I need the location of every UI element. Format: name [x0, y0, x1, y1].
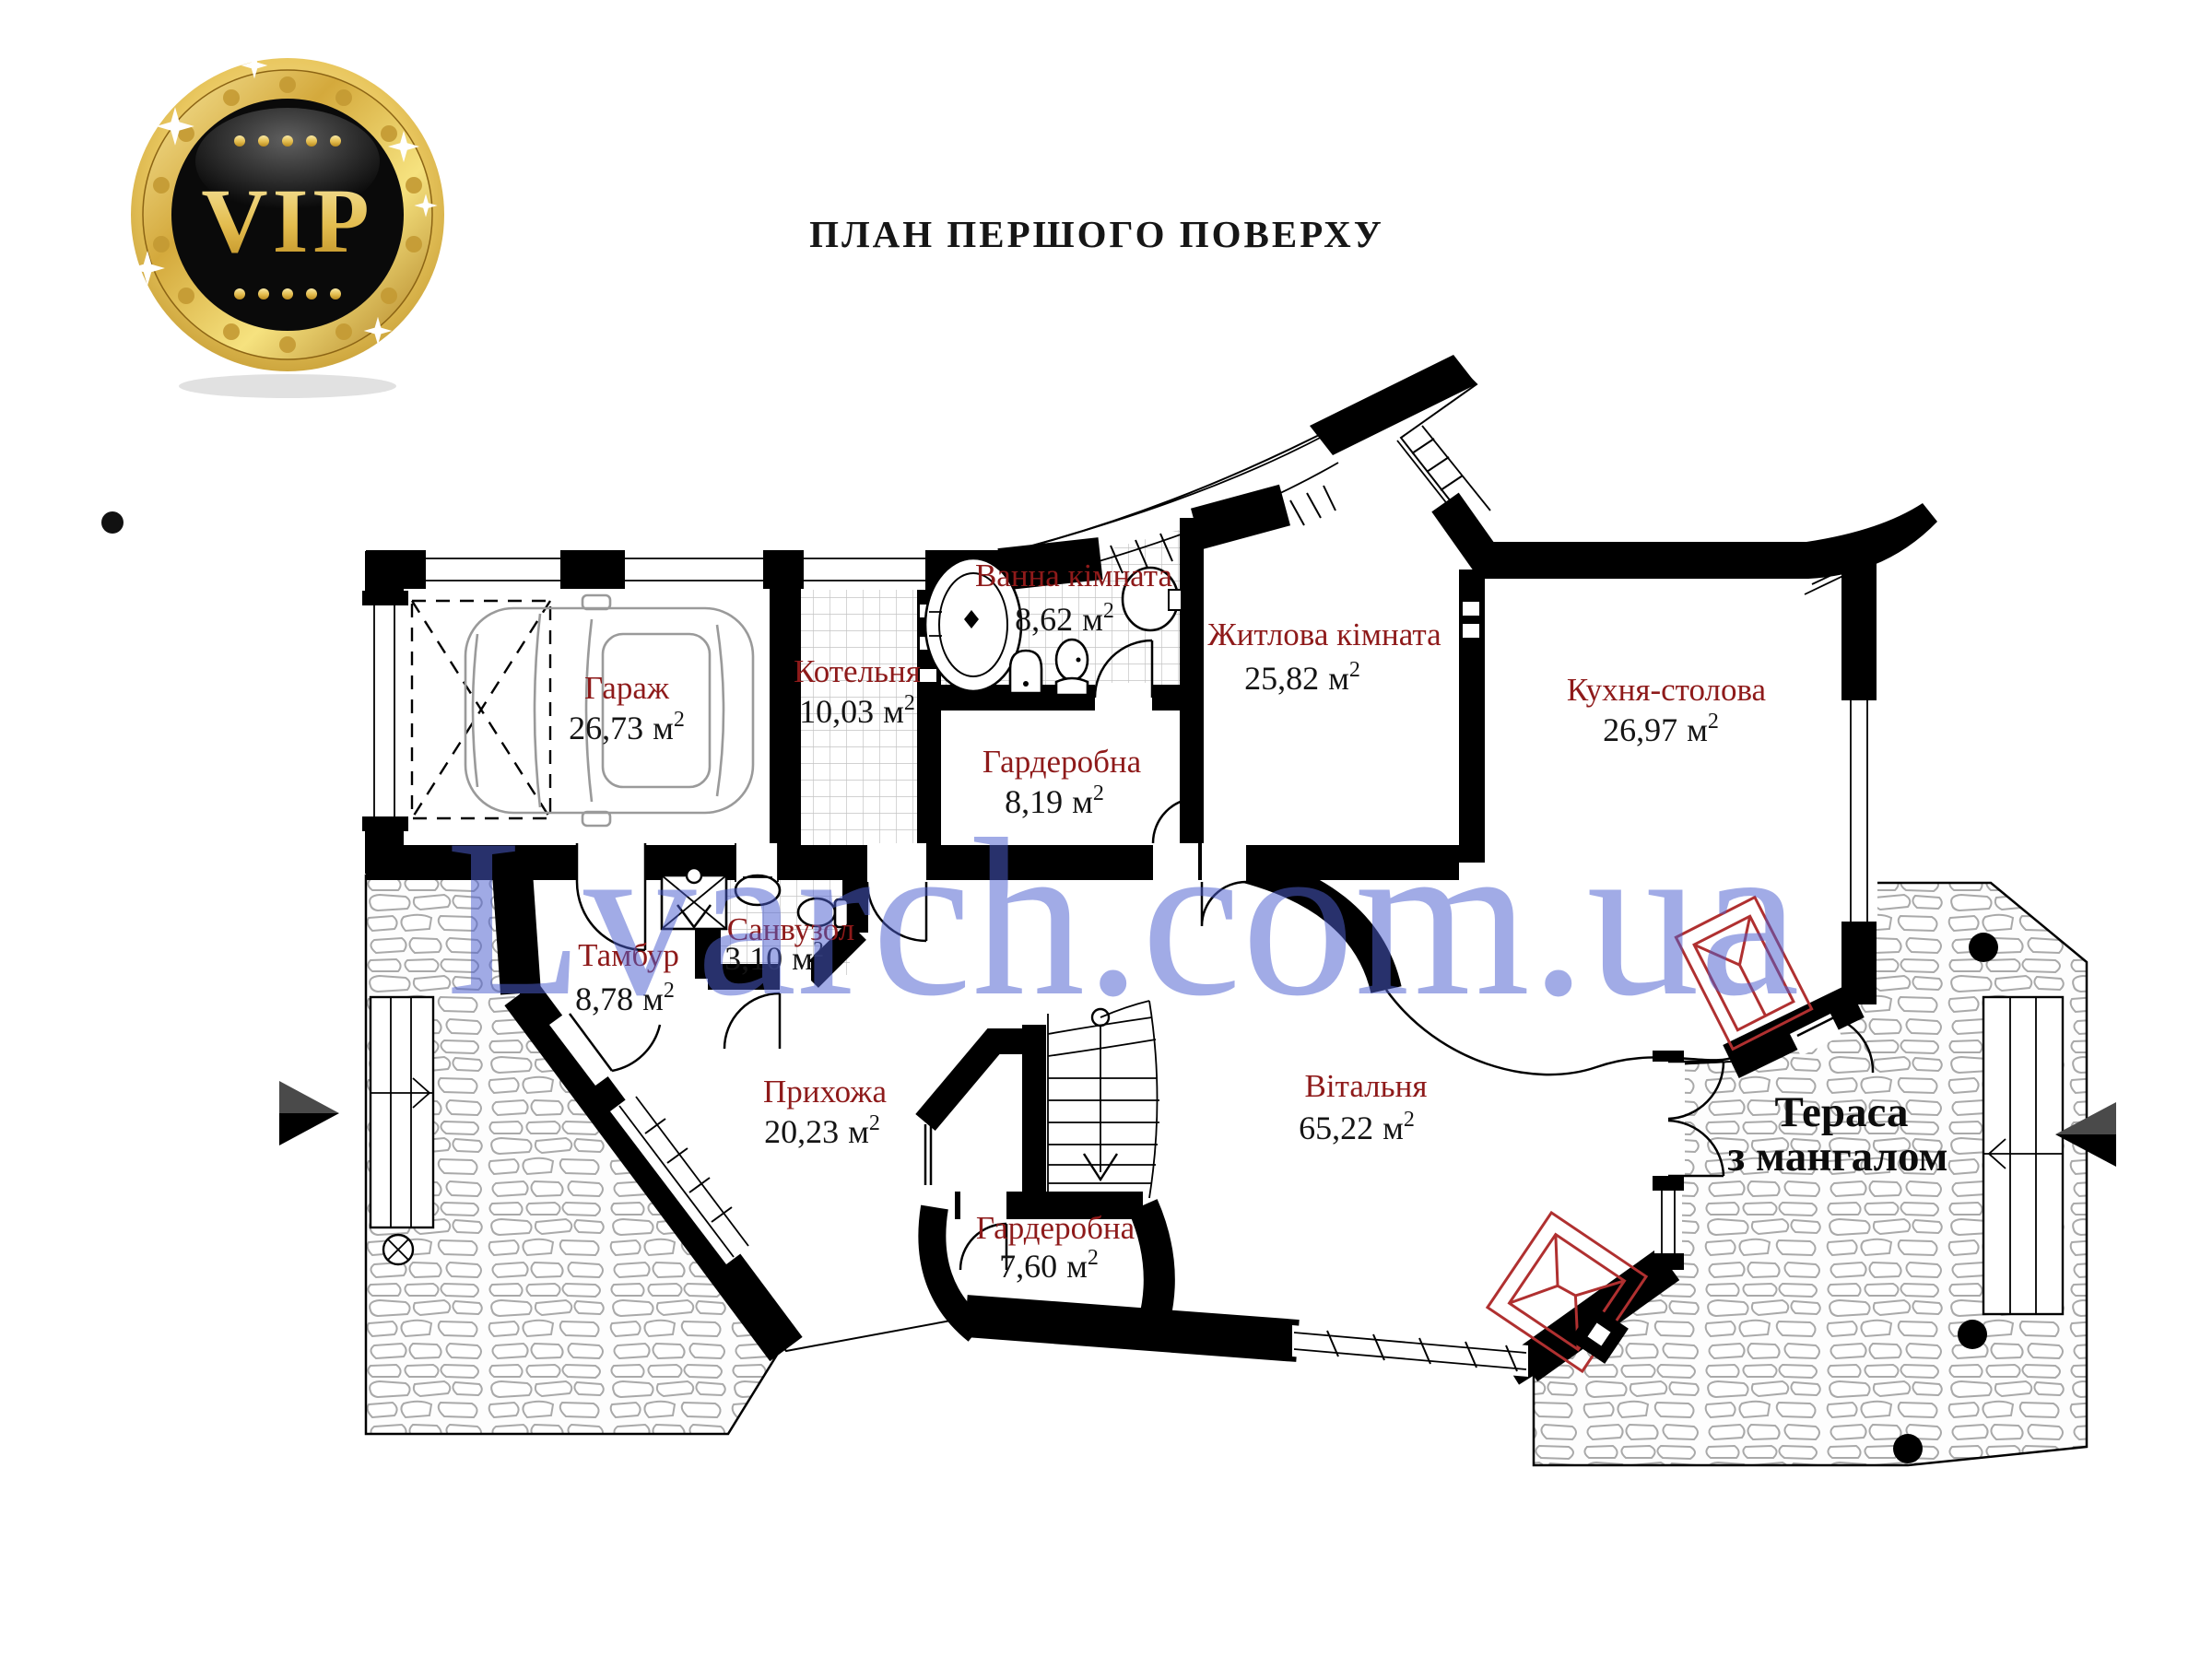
- svg-text:8,62м2: 8,62м2: [1015, 599, 1114, 638]
- svg-text:Тераса: Тераса: [1775, 1088, 1909, 1136]
- porch-steps: [371, 997, 433, 1264]
- svg-text:Гардеробна: Гардеробна: [982, 744, 1142, 780]
- svg-text:Гардеробна: Гардеробна: [976, 1210, 1135, 1246]
- entrance-arrow-left: [279, 1081, 339, 1145]
- floor-plan-canvas: ПЛАН ПЕРШОГО ПОВЕРХУ: [0, 0, 2212, 1656]
- svg-text:Житлова кімната: Житлова кімната: [1207, 617, 1441, 652]
- svg-text:65,22м2: 65,22м2: [1299, 1108, 1415, 1146]
- reference-dot: [101, 511, 124, 534]
- badge-shadow: [179, 374, 396, 398]
- bidet-icon: [1010, 651, 1041, 693]
- svg-text:26,97м2: 26,97м2: [1603, 710, 1719, 748]
- floor-plan-page: ПЛАН ПЕРШОГО ПОВЕРХУ: [0, 0, 2212, 1656]
- svg-text:7,60м2: 7,60м2: [999, 1246, 1099, 1285]
- svg-text:Котельня: Котельня: [794, 653, 921, 689]
- toilet-icon: [1056, 640, 1088, 695]
- svg-text:26,73м2: 26,73м2: [569, 708, 685, 746]
- page-title: ПЛАН ПЕРШОГО ПОВЕРХУ: [809, 213, 1384, 255]
- svg-text:25,82м2: 25,82м2: [1244, 658, 1360, 697]
- garage-windows: [426, 549, 925, 590]
- svg-text:Ванна кімната: Ванна кімната: [975, 558, 1173, 593]
- svg-text:Гараж: Гараж: [584, 670, 670, 706]
- terrace-steps: [1983, 997, 2063, 1314]
- svg-text:Кухня-столова: Кухня-столова: [1567, 672, 1767, 708]
- watermark: Lvarch.com.ua: [445, 793, 1799, 1042]
- badge-label: VIP: [201, 170, 373, 272]
- svg-text:Прихожа: Прихожа: [763, 1074, 887, 1110]
- svg-text:20,23м2: 20,23м2: [764, 1111, 880, 1150]
- svg-text:Вітальня: Вітальня: [1305, 1068, 1428, 1104]
- svg-text:10,03м2: 10,03м2: [799, 691, 915, 730]
- vip-badge: VIP: [130, 53, 444, 398]
- svg-text:з мангалом: з мангалом: [1727, 1133, 1947, 1180]
